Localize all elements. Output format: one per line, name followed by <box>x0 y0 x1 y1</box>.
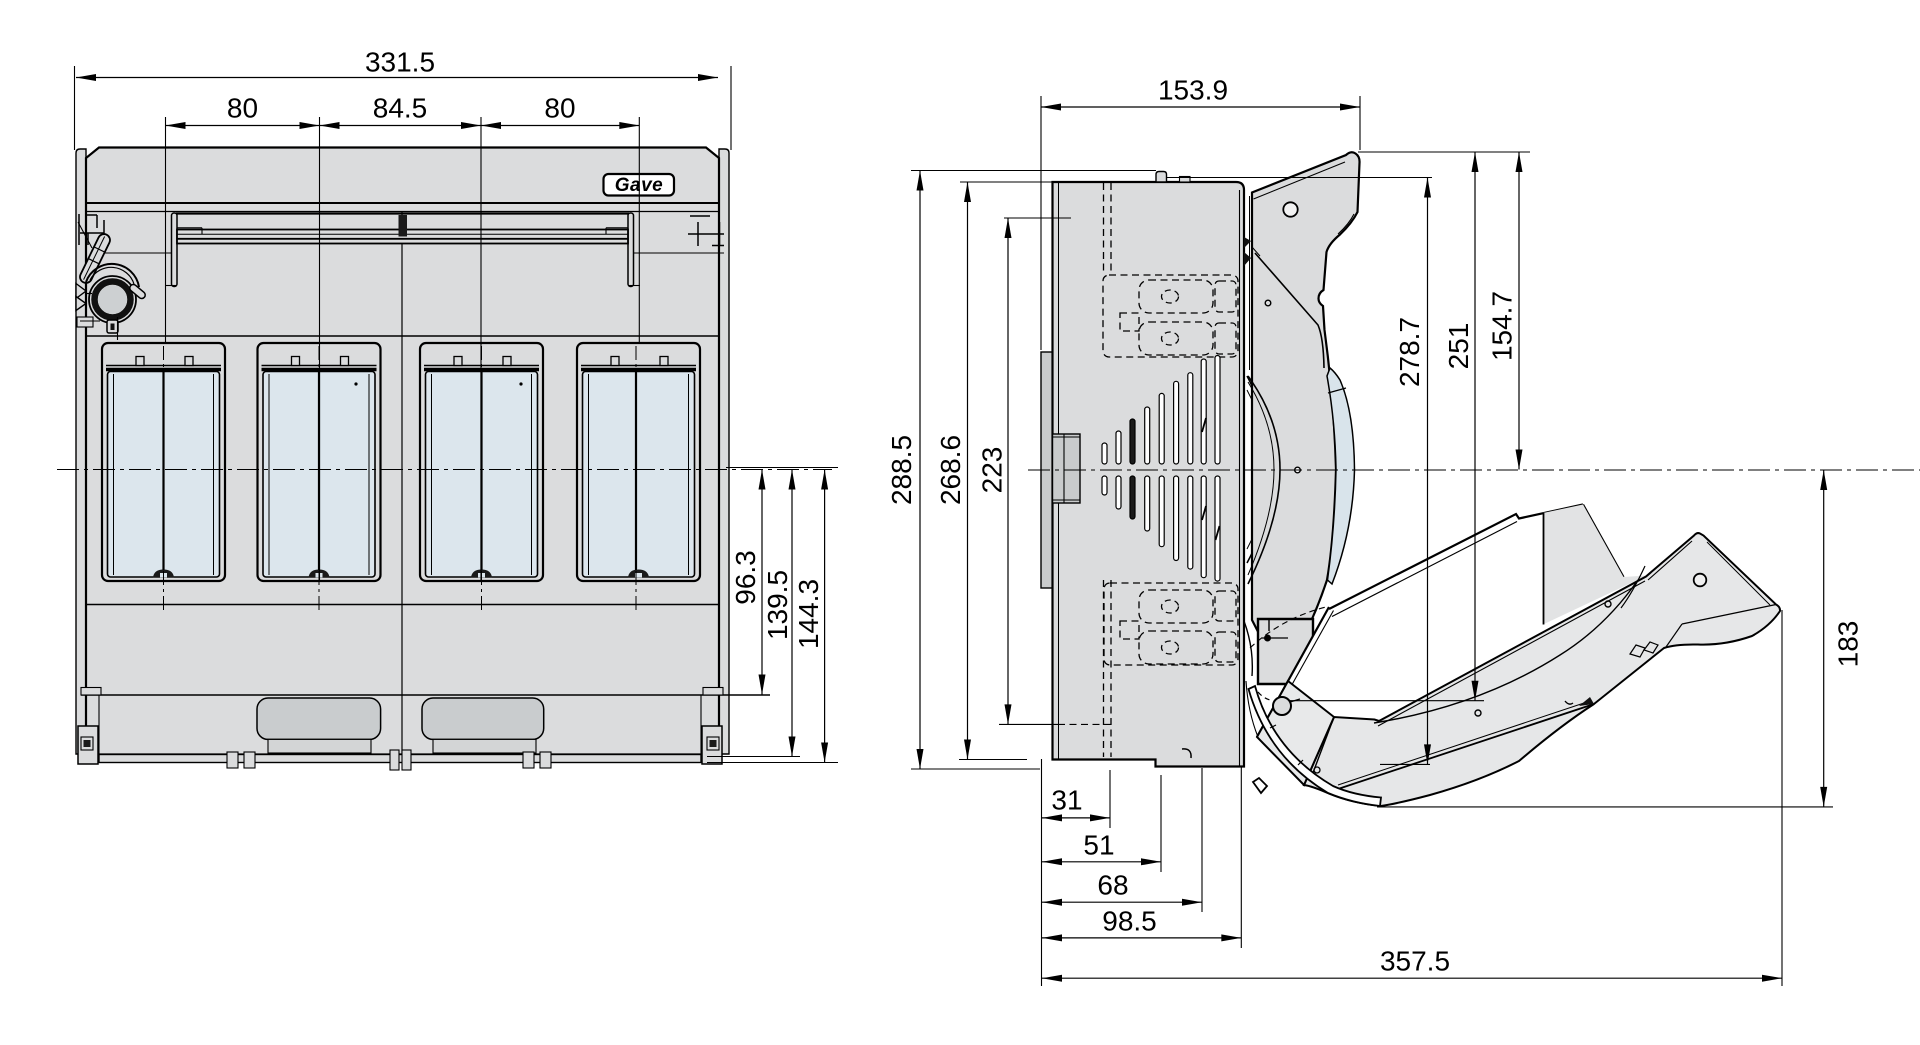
svg-text:288.5: 288.5 <box>886 435 917 505</box>
svg-text:183: 183 <box>1833 621 1864 668</box>
svg-text:144.3: 144.3 <box>793 579 824 649</box>
svg-text:51: 51 <box>1083 830 1114 861</box>
svg-text:251: 251 <box>1443 323 1474 370</box>
svg-text:223: 223 <box>977 447 1008 494</box>
svg-text:139.5: 139.5 <box>762 570 793 640</box>
svg-text:84.5: 84.5 <box>373 93 428 124</box>
svg-text:268.6: 268.6 <box>935 435 966 505</box>
svg-text:80: 80 <box>544 93 575 124</box>
svg-text:278.7: 278.7 <box>1394 317 1425 387</box>
svg-text:98.5: 98.5 <box>1102 906 1157 937</box>
svg-text:331.5: 331.5 <box>365 47 435 78</box>
svg-text:154.7: 154.7 <box>1487 291 1518 361</box>
svg-text:31: 31 <box>1051 785 1082 816</box>
svg-text:96.3: 96.3 <box>730 550 761 605</box>
svg-text:68: 68 <box>1097 870 1128 901</box>
svg-text:153.9: 153.9 <box>1158 75 1228 106</box>
svg-text:357.5: 357.5 <box>1380 946 1450 977</box>
svg-text:80: 80 <box>227 93 258 124</box>
